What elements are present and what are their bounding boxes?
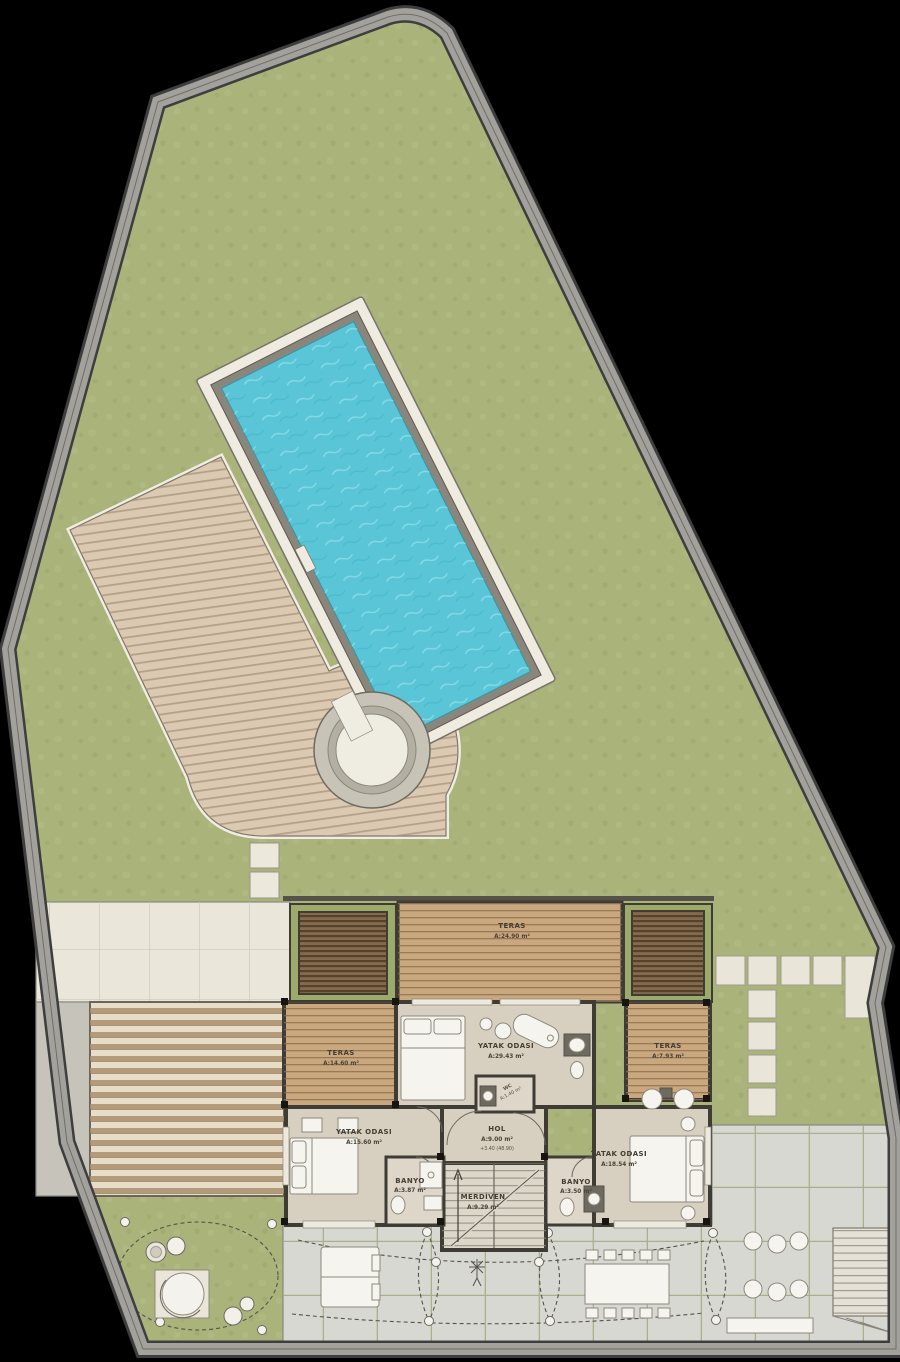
room-label-banyo-right: BANYO: [561, 1178, 590, 1186]
pergola-right-louvers: [632, 911, 704, 995]
chair: [586, 1308, 598, 1318]
stool: [744, 1232, 762, 1250]
chair: [640, 1308, 652, 1318]
room-label-merdiven: MERDİVEN: [461, 1192, 506, 1201]
dining-table: [585, 1264, 669, 1304]
pillow: [434, 1019, 461, 1034]
terrace-chair: [642, 1089, 662, 1109]
post: [281, 1101, 288, 1108]
post: [703, 1095, 710, 1102]
toilet: [560, 1198, 574, 1216]
room-hol: [442, 1107, 546, 1163]
chair: [640, 1250, 652, 1260]
guide-node: [425, 1317, 434, 1326]
chair: [622, 1308, 634, 1318]
post: [541, 1153, 548, 1160]
stepping-stone: [748, 990, 776, 1018]
post: [281, 1218, 288, 1225]
post: [392, 998, 399, 1005]
room-area-yatak-center: A:29.43 m²: [488, 1053, 524, 1060]
post: [703, 999, 710, 1006]
room-area-banyo-right: A:3.50 m²: [560, 1188, 592, 1195]
wc-sink: [483, 1091, 493, 1101]
stepping-stone: [716, 956, 745, 985]
pillow: [690, 1140, 703, 1166]
terrace-chair: [674, 1089, 694, 1109]
pillow: [690, 1170, 703, 1196]
guide-node: [709, 1229, 718, 1238]
teras-right-planks: [626, 1002, 710, 1100]
room-label-teras-right: TERAS: [654, 1042, 681, 1050]
site-plan: TERAS A:24.90 m² TERAS A:14.60 m² TERAS …: [0, 0, 900, 1362]
bench: [727, 1318, 813, 1333]
post: [281, 998, 288, 1005]
window: [412, 999, 492, 1005]
pillow: [292, 1166, 306, 1188]
post: [622, 999, 629, 1006]
stepping-stone: [813, 956, 842, 985]
side-table: [495, 1023, 511, 1039]
planter: [224, 1307, 242, 1325]
toilet: [571, 1062, 584, 1079]
nightstand: [681, 1117, 695, 1131]
post: [622, 1095, 629, 1102]
room-area-merdiven: A:9.29 m²: [467, 1204, 499, 1211]
pergola-left-louvers: [299, 912, 387, 994]
post: [437, 1153, 444, 1160]
room-elevation-hol: +3.40 (48.90): [480, 1146, 514, 1152]
stepping-stone: [781, 956, 810, 985]
guide-node: [258, 1326, 267, 1335]
room-area-yatak-right: A:18.54 m²: [601, 1161, 637, 1168]
pillow: [292, 1141, 306, 1163]
room-label-teras-left: TERAS: [327, 1049, 354, 1057]
tile-patio-grid: [36, 902, 290, 1002]
post: [392, 1101, 399, 1108]
room-label-hol: HOL: [488, 1125, 506, 1133]
retaining-edge: [283, 896, 714, 901]
planter: [240, 1297, 254, 1311]
window: [705, 1127, 711, 1185]
stepping-stone: [748, 1088, 776, 1116]
nightstand: [681, 1206, 695, 1220]
window: [614, 1221, 686, 1228]
room-area-teras-left: A:14.60 m²: [323, 1060, 359, 1067]
stool: [768, 1235, 786, 1253]
post: [437, 1218, 444, 1225]
room-area-yatak-left: A:15.60 m²: [346, 1139, 382, 1146]
daybed: [321, 1247, 380, 1307]
window: [500, 999, 580, 1005]
room-area-teras-right: A:7.93 m²: [652, 1053, 684, 1060]
room-area-teras-top: A:24.90 m²: [494, 933, 530, 940]
room-label-banyo-left: BANYO: [395, 1177, 424, 1185]
stair-treads: [833, 1228, 895, 1316]
guide-node: [432, 1258, 441, 1267]
chair: [658, 1308, 670, 1318]
chair: [622, 1250, 634, 1260]
stepping-stone: [748, 1055, 776, 1083]
stool: [744, 1280, 762, 1298]
sink: [569, 1038, 585, 1052]
window: [303, 1221, 375, 1228]
spa-jacuzzi: [314, 691, 430, 808]
bed-center: [401, 1016, 465, 1100]
chair: [604, 1250, 616, 1260]
chair: [604, 1308, 616, 1318]
stone-pad: [250, 872, 279, 898]
toilet: [391, 1196, 405, 1214]
room-label-teras-top: TERAS: [498, 922, 525, 930]
room-label-yatak-center: YATAK ODASI: [477, 1042, 534, 1050]
post: [602, 1218, 609, 1225]
stepping-stone: [748, 1022, 776, 1050]
site-plan-canvas: TERAS A:24.90 m² TERAS A:14.60 m² TERAS …: [0, 0, 900, 1362]
daybed-cushion: [372, 1284, 380, 1300]
pillow: [404, 1019, 431, 1034]
planter: [167, 1237, 185, 1255]
guide-node: [156, 1318, 165, 1327]
teras-top-planks: [398, 902, 622, 1002]
nightstand: [302, 1118, 322, 1132]
stool: [768, 1283, 786, 1301]
guide-node: [546, 1317, 555, 1326]
guide-node: [423, 1228, 432, 1237]
fire-pit: [162, 1273, 204, 1315]
pergola-slats: [90, 1002, 284, 1196]
guide-node: [268, 1220, 277, 1229]
chair: [586, 1250, 598, 1260]
post: [703, 1218, 710, 1225]
room-label-yatak-left: YATAK ODASI: [335, 1128, 392, 1136]
stool: [790, 1280, 808, 1298]
guide-node: [121, 1218, 130, 1227]
daybed-cushion: [372, 1255, 380, 1271]
stool: [790, 1232, 808, 1250]
room-area-hol: A:9.00 m²: [481, 1136, 513, 1143]
stone-pad: [250, 843, 279, 868]
planter-inner: [151, 1247, 162, 1258]
guide-node: [535, 1258, 544, 1267]
side-table: [480, 1018, 492, 1030]
window: [283, 1127, 289, 1185]
room-area-banyo-left: A:3.87 m²: [394, 1187, 426, 1194]
sink-counter: [424, 1196, 442, 1210]
stepping-stone: [748, 956, 777, 985]
guide-node: [712, 1316, 721, 1325]
room-label-yatak-right: YATAK ODASI: [590, 1150, 647, 1158]
chair: [658, 1250, 670, 1260]
